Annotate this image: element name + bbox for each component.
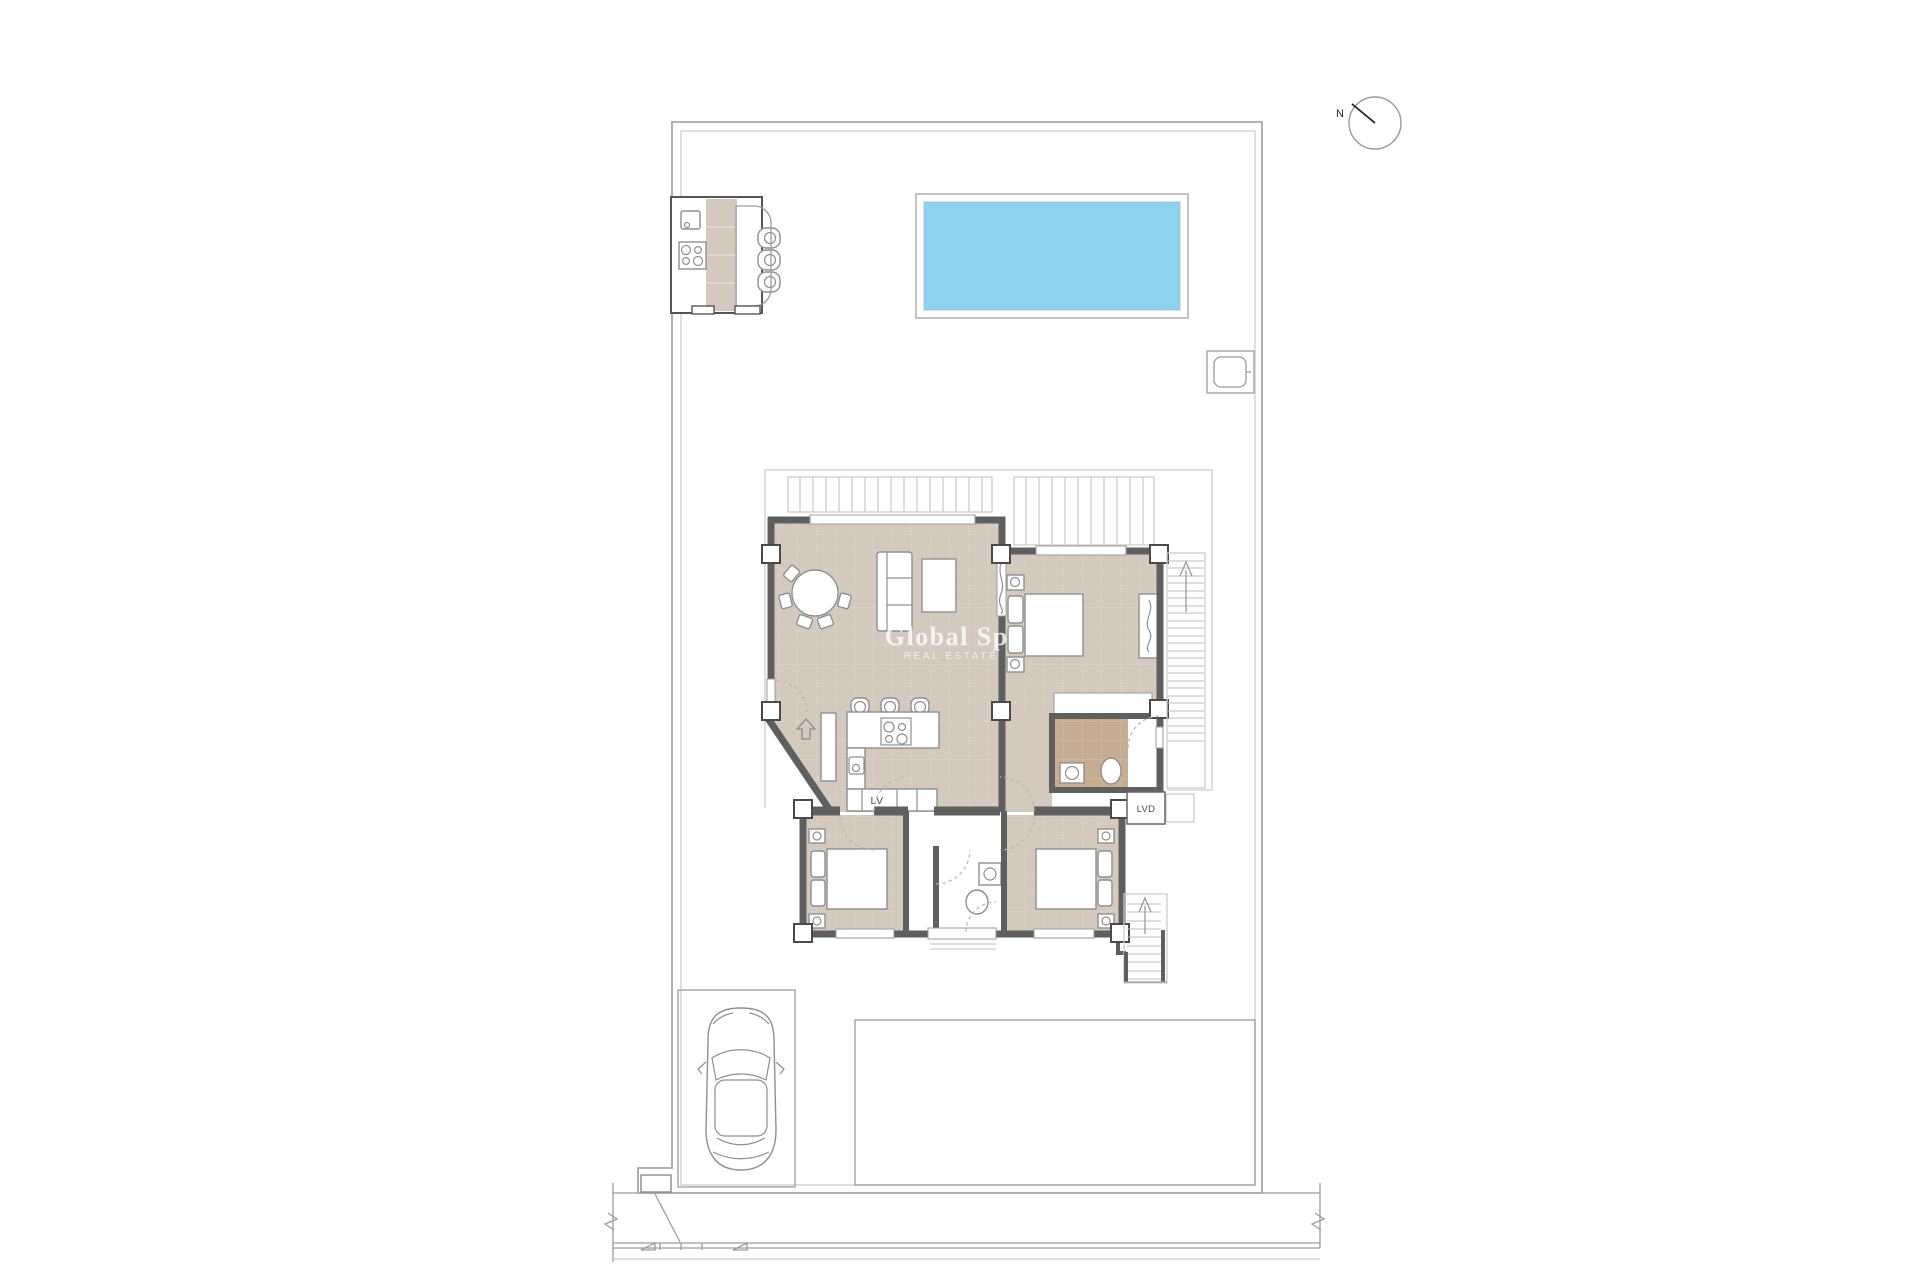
- rear-steps-lines: [930, 944, 996, 949]
- window-bedroom3: [1034, 929, 1094, 938]
- pillow-icon: [1008, 596, 1023, 623]
- pillow-icon: [1098, 851, 1112, 877]
- bathroom2: [966, 863, 1001, 914]
- north-compass: N: [1336, 97, 1401, 149]
- pergola-left: [788, 477, 992, 512]
- window-bedroom-top: [1036, 546, 1126, 555]
- north-label: N: [1336, 108, 1344, 120]
- sofa-outline: [877, 552, 912, 631]
- pergola-right: [1014, 477, 1154, 545]
- stool-icon: [758, 272, 780, 292]
- gate-swing-line: [654, 1192, 680, 1242]
- pillar: [762, 702, 780, 720]
- pillow-icon: [1098, 880, 1112, 906]
- pillar: [1150, 700, 1168, 718]
- bar-stools: [758, 228, 780, 292]
- street: [605, 1183, 1324, 1262]
- parking-space: [678, 990, 795, 1187]
- bed: [1036, 849, 1096, 909]
- terrace-area: [855, 1020, 1255, 1185]
- break-mark-right: [1312, 1213, 1324, 1230]
- outdoor-sink-icon: [681, 211, 700, 229]
- window-bedroom2: [836, 929, 894, 938]
- laundry-area: LVD: [1127, 792, 1194, 824]
- floor-plan-page: N: [0, 0, 1920, 1280]
- curb-ticks: [660, 1243, 702, 1250]
- pillar: [992, 702, 1010, 720]
- floor-plan-drawing: N: [0, 0, 1920, 1280]
- rear-porch-step: [928, 928, 996, 939]
- appliance-outline: [1166, 794, 1194, 822]
- toilet-icon: [966, 890, 988, 914]
- stool-icon: [758, 228, 780, 248]
- bathroom2-door-arc: [936, 850, 970, 884]
- pillar: [762, 545, 780, 563]
- watermark-title: Global Spa: [885, 622, 1024, 651]
- bed: [827, 849, 887, 909]
- round-dining-table: [792, 570, 838, 616]
- kitchen-counter-left: [847, 748, 865, 789]
- pillar: [794, 924, 812, 942]
- outdoor-kitchen: [671, 197, 780, 314]
- pillow-icon: [811, 880, 825, 906]
- hall-floor: [1002, 714, 1052, 812]
- bathroom-sink-icon: [979, 863, 1001, 885]
- unit-foot: [735, 306, 760, 314]
- unit-foot: [692, 306, 714, 314]
- stairs-up-arrow-icon: [1180, 562, 1192, 612]
- laundry-label: LVD: [1137, 804, 1156, 815]
- pool: [916, 194, 1188, 318]
- tall-unit: [821, 713, 836, 781]
- coffee-table: [922, 559, 956, 612]
- curb-lines: [613, 1243, 1320, 1248]
- curb-hatch-triangles: [641, 1243, 747, 1250]
- nightstand: [1098, 829, 1114, 843]
- break-mark-left: [605, 1213, 617, 1230]
- toilet-icon: [1101, 758, 1121, 784]
- pool-water: [924, 202, 1180, 310]
- pillar: [992, 545, 1010, 563]
- pillar: [1111, 924, 1129, 942]
- stairs-main: [1167, 553, 1205, 788]
- window-living-top: [810, 515, 975, 524]
- stair-side-walls: [1126, 930, 1163, 982]
- stool-icon: [758, 250, 780, 270]
- sofa: [877, 552, 912, 631]
- pillar: [1150, 545, 1168, 563]
- stair-treads: [1127, 904, 1161, 979]
- closet-band: [1054, 693, 1152, 714]
- car-icon: [698, 1008, 784, 1170]
- bath-door-leaf: [1156, 727, 1163, 748]
- stairs-small: [1124, 894, 1167, 983]
- pillar: [794, 800, 812, 818]
- outdoor-shower: [1207, 351, 1254, 393]
- master-bath-door-arc: [1128, 716, 1160, 748]
- master-bed: [1025, 594, 1083, 656]
- watermark-subtitle: REAL ESTATE: [904, 651, 999, 662]
- pillow-icon: [811, 851, 825, 877]
- nightstand: [809, 829, 825, 843]
- gate-pillar: [641, 1175, 671, 1192]
